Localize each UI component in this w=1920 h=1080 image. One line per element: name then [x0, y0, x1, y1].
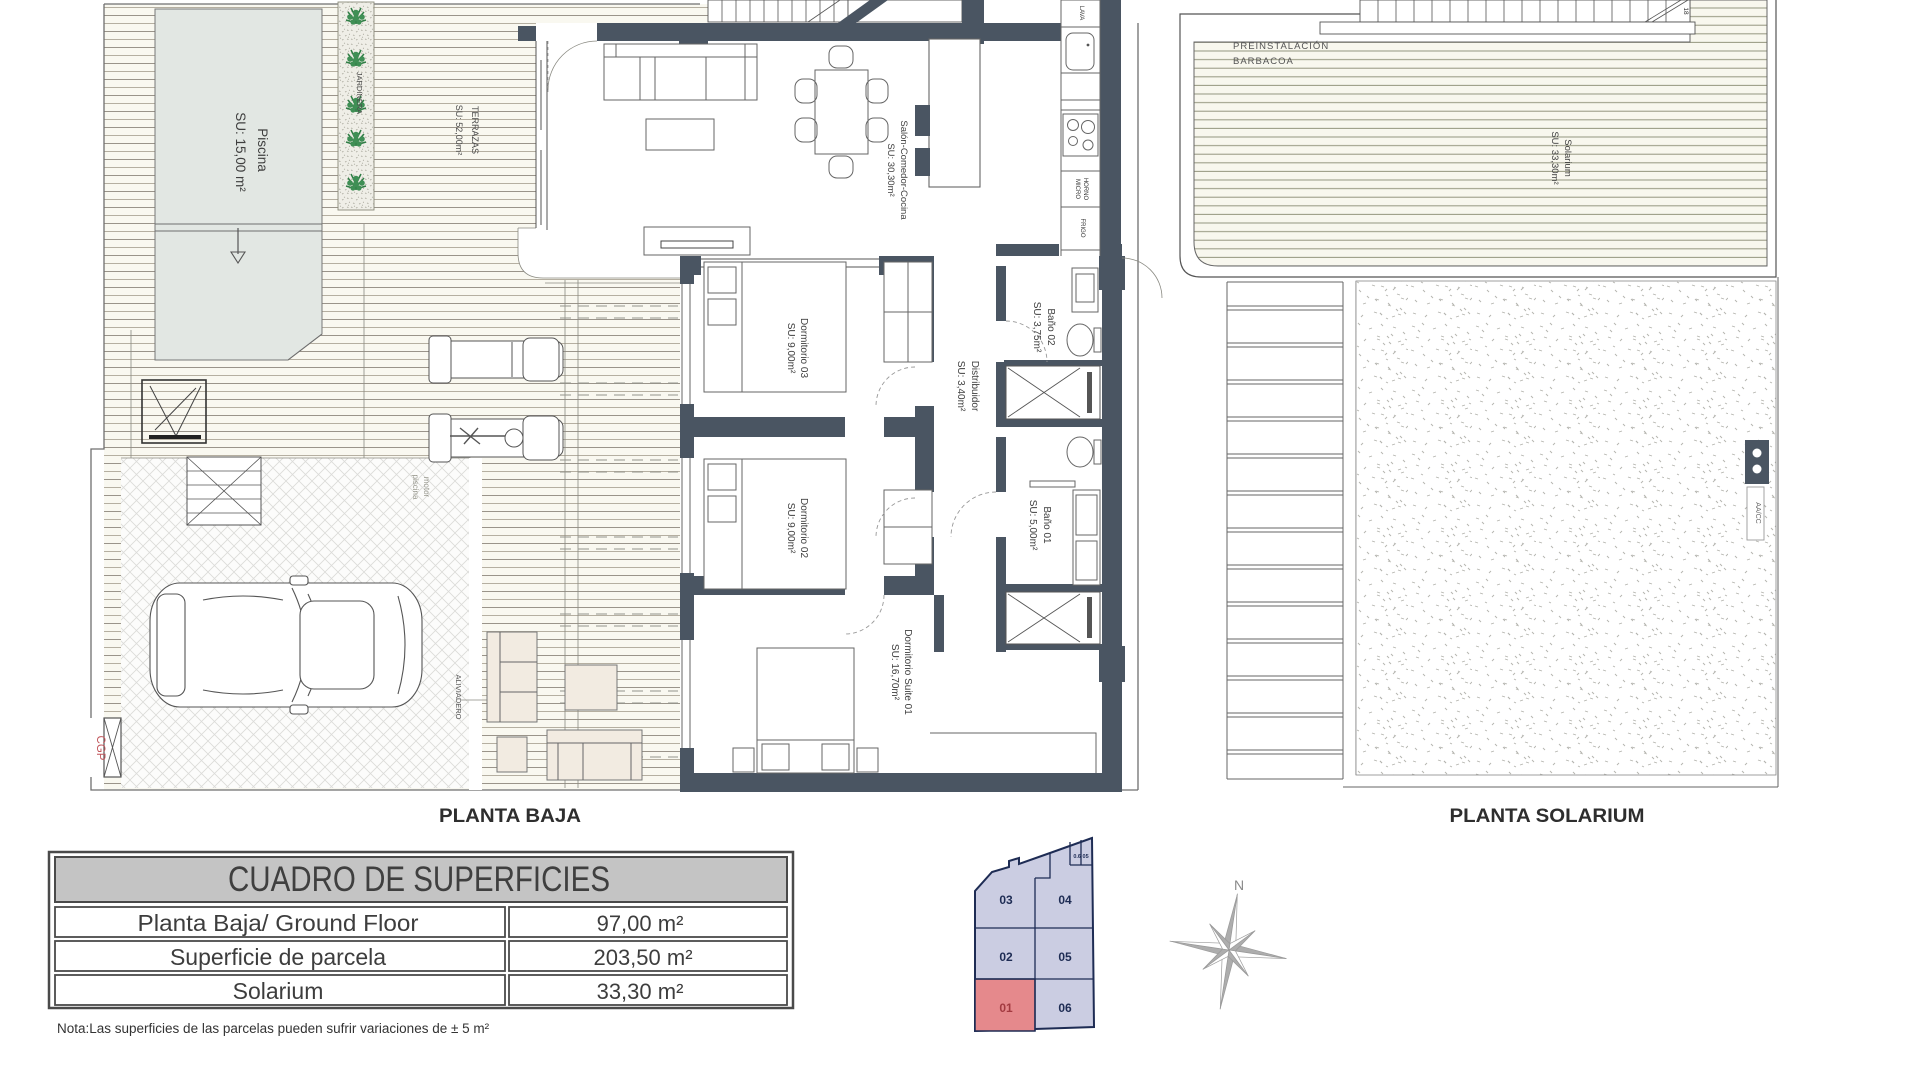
- svg-text:06: 06: [1058, 1001, 1072, 1015]
- svg-text:SU: 33,30m²: SU: 33,30m²: [1549, 131, 1560, 184]
- svg-text:LAVA: LAVA: [1078, 6, 1084, 20]
- svg-text:Solarium: Solarium: [1562, 139, 1573, 177]
- svg-text:JARDINERA: JARDINERA: [355, 72, 364, 115]
- svg-text:03: 03: [999, 893, 1013, 907]
- svg-text:PLANTA SOLARIUM: PLANTA SOLARIUM: [1450, 805, 1645, 827]
- svg-text:PLANTA BAJA: PLANTA BAJA: [439, 805, 581, 827]
- svg-text:97,00 m²: 97,00 m²: [597, 911, 684, 936]
- svg-text:Distribuidor: Distribuidor: [969, 361, 980, 412]
- svg-text:piscina: piscina: [411, 475, 420, 500]
- svg-text:Solarium: Solarium: [233, 978, 324, 1004]
- svg-text:Salón-Comedor-Cocina: Salón-Comedor-Cocina: [898, 120, 909, 220]
- svg-text:SU: 16,70m²: SU: 16,70m²: [889, 644, 900, 701]
- svg-text:Planta Baja/ Ground Floor: Planta Baja/ Ground Floor: [138, 910, 419, 936]
- svg-text:TERRAZAS: TERRAZAS: [470, 106, 480, 154]
- svg-text:HORNO: HORNO: [1082, 178, 1088, 201]
- svg-text:BARBACOA: BARBACOA: [1233, 56, 1294, 67]
- svg-text:05: 05: [1058, 950, 1072, 964]
- svg-text:Nota:Las superficies de las pa: Nota:Las superficies de las parcelas pue…: [57, 1021, 490, 1036]
- svg-text:04: 04: [1058, 893, 1072, 907]
- svg-text:Dormitorio 03: Dormitorio 03: [798, 318, 809, 378]
- svg-text:SU: 3,75m²: SU: 3,75m²: [1031, 302, 1042, 353]
- svg-text:SU: 9,00m²: SU: 9,00m²: [785, 503, 796, 554]
- svg-text:33,30 m²: 33,30 m²: [597, 979, 684, 1004]
- svg-text:AA/CC: AA/CC: [1754, 502, 1761, 523]
- svg-text:SU: 3,40m²: SU: 3,40m²: [955, 361, 966, 412]
- svg-text:PREINSTALACIÓN: PREINSTALACIÓN: [1233, 41, 1329, 52]
- svg-text:SU: 15,00 m²: SU: 15,00 m²: [233, 112, 248, 192]
- svg-text:SU: 52,00m²: SU: 52,00m²: [454, 105, 464, 156]
- svg-text:Baño 02: Baño 02: [1045, 308, 1056, 346]
- svg-text:Baño 01: Baño 01: [1041, 506, 1052, 544]
- svg-text:02: 02: [999, 950, 1013, 964]
- svg-text:203,50 m²: 203,50 m²: [593, 945, 692, 970]
- svg-text:N: N: [1234, 877, 1244, 893]
- svg-text:Superficie de parcela: Superficie de parcela: [170, 944, 386, 970]
- svg-text:18: 18: [1682, 7, 1689, 15]
- svg-text:CUADRO DE SUPERFICIES: CUADRO DE SUPERFICIES: [228, 860, 610, 899]
- svg-text:motor: motor: [422, 477, 431, 498]
- svg-text:SU: 30,30m²: SU: 30,30m²: [885, 143, 896, 196]
- svg-text:01: 01: [999, 1001, 1013, 1015]
- svg-text:MICRO: MICRO: [1074, 179, 1080, 199]
- svg-text:0.6 05: 0.6 05: [1073, 854, 1088, 860]
- svg-text:Piscina: Piscina: [255, 128, 270, 172]
- svg-text:Dormitorio Suite 01: Dormitorio Suite 01: [902, 629, 913, 715]
- svg-text:SU: 5,00m²: SU: 5,00m²: [1027, 500, 1038, 551]
- svg-text:CGP: CGP: [94, 736, 106, 761]
- svg-text:Dormitorio 02: Dormitorio 02: [798, 498, 809, 558]
- svg-text:ALIVIADERO: ALIVIADERO: [454, 674, 463, 719]
- svg-text:SU: 9,00m²: SU: 9,00m²: [785, 323, 796, 374]
- svg-text:FRIGO: FRIGO: [1079, 219, 1085, 238]
